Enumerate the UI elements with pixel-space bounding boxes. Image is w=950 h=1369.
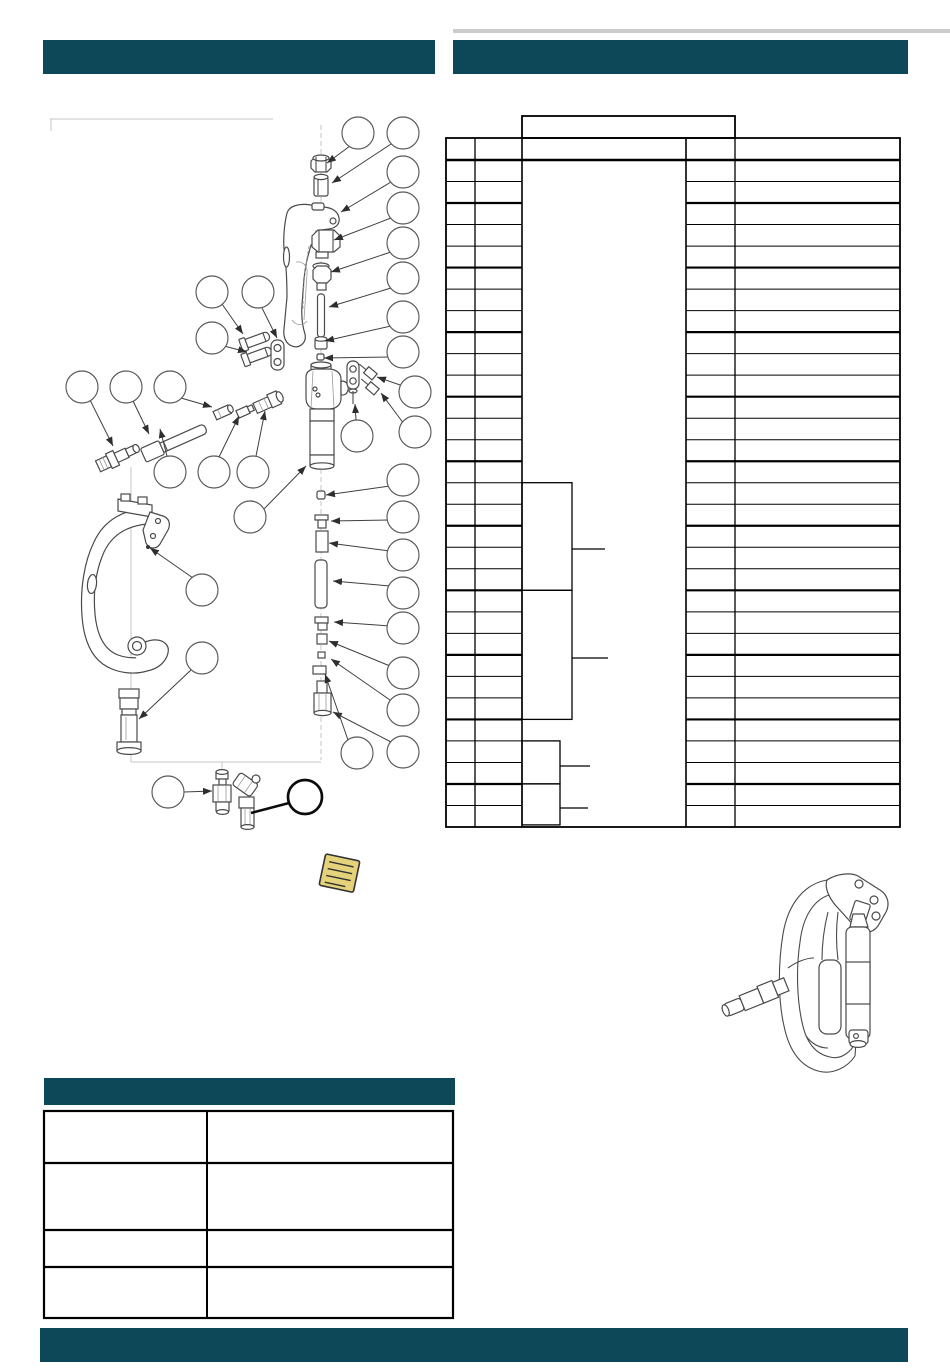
info-table-outline [44, 1111, 453, 1318]
leader-line [377, 377, 403, 386]
part-coupler-assembly [213, 770, 260, 830]
leader-line [334, 622, 390, 626]
part-threaded-disc [313, 666, 326, 674]
part-hose-coupler [95, 440, 143, 474]
kit-group-brackets [522, 483, 608, 825]
part-valve-nut [313, 263, 331, 290]
part-top-hex-nut [311, 155, 331, 172]
page-artwork [0, 0, 950, 1369]
leader-line [329, 288, 391, 307]
leader-line [139, 670, 191, 719]
part-seal-block [317, 634, 327, 644]
balloon-callout [387, 301, 419, 333]
parts-list-table [446, 116, 900, 827]
construction-lines [50, 119, 321, 775]
leader-line [329, 543, 390, 551]
leader-line [324, 357, 390, 358]
leader-line [256, 411, 265, 456]
balloon-callout [154, 371, 186, 403]
part-knurled-cylinder [310, 409, 334, 469]
part-spacer-cylinder [314, 174, 328, 196]
table-title-box [522, 116, 735, 138]
balloon-callout [196, 276, 228, 308]
kit-bracket [522, 741, 560, 784]
kit-bracket [522, 483, 572, 591]
part-packing-nut [312, 230, 340, 258]
part-seat-fitting [315, 515, 328, 528]
balloon-callout [110, 371, 142, 403]
part-link-plate [271, 340, 284, 370]
leader-line [329, 641, 390, 666]
part-valve-body [306, 362, 348, 409]
leader-line [355, 404, 356, 420]
leader-line [219, 416, 239, 457]
leader-line [332, 144, 391, 183]
leader-line [341, 182, 391, 212]
note-icon [319, 854, 360, 893]
balloon-callout [342, 117, 374, 149]
leader-line [327, 146, 350, 163]
balloon-callout [66, 371, 98, 403]
balloon-callout [237, 456, 269, 488]
part-spring [316, 531, 328, 552]
balloon-callout [341, 737, 373, 769]
part-set-screw-1 [357, 361, 377, 380]
leader-line [184, 791, 212, 792]
balloon-callout [387, 694, 419, 726]
part-washer [318, 652, 325, 658]
balloon-callout [387, 262, 419, 294]
part-clamp-frame [82, 494, 170, 673]
leader-line [251, 803, 289, 813]
leader-line [334, 218, 391, 240]
part-bottom-fitting [314, 681, 331, 716]
leader-line [325, 326, 391, 341]
balloon-callout [387, 336, 419, 368]
balloon-callout [387, 464, 419, 496]
part-gland-fitting [315, 617, 328, 630]
part-rod-fitting [315, 337, 327, 349]
part-nipple-fitting [213, 404, 234, 420]
leader-line [331, 659, 390, 700]
leader-line [133, 401, 149, 434]
leader-line [331, 252, 391, 272]
balloon-callout [152, 776, 184, 808]
balloon-callout [154, 456, 186, 488]
part-set-screw-2 [359, 376, 379, 395]
part-small-ball [317, 354, 324, 360]
leader-line [331, 520, 390, 521]
balloon-callout [399, 416, 431, 448]
balloon-callout [387, 657, 419, 689]
info-table-header-bar [44, 1078, 455, 1105]
kit-bracket [522, 784, 560, 825]
balloon-callout [387, 539, 419, 571]
part-piston-rod [318, 294, 325, 337]
kit-bracket [522, 590, 572, 719]
part-cylinder-tube [315, 560, 327, 608]
leader-line [150, 548, 193, 578]
assembled-tool-drawing [719, 874, 888, 1072]
balloon-callout [387, 736, 419, 768]
leader-line [326, 486, 390, 495]
highlight-balloon [288, 780, 322, 814]
leader-line [181, 398, 212, 407]
part-elbow-fitting [252, 389, 285, 414]
balloon-callout [387, 192, 419, 224]
balloon-callout [387, 612, 419, 644]
balloon-callout [387, 156, 419, 188]
part-small-plug [317, 491, 325, 499]
footer-bar [40, 1328, 908, 1362]
balloon-callout [242, 276, 274, 308]
balloon-callout [387, 227, 419, 259]
leader-line [90, 400, 113, 446]
table-row-lines [446, 182, 900, 806]
balloon-callout [387, 117, 419, 149]
balloon-callout [198, 456, 230, 488]
balloon-callout [387, 577, 419, 609]
leader-line [333, 581, 390, 586]
part-side-plate [347, 361, 359, 404]
part-cartridge [117, 689, 141, 754]
balloon-callout [399, 376, 431, 408]
balloon-callout [234, 501, 266, 533]
balloon-callout [387, 501, 419, 533]
balloon-callout [196, 322, 228, 354]
exploded-parts-diagram [50, 117, 431, 892]
balloon-callout [186, 642, 218, 674]
balloon-callout [186, 574, 218, 606]
balloon-callout [341, 420, 373, 452]
page [0, 0, 950, 1369]
info-table [44, 1111, 453, 1318]
